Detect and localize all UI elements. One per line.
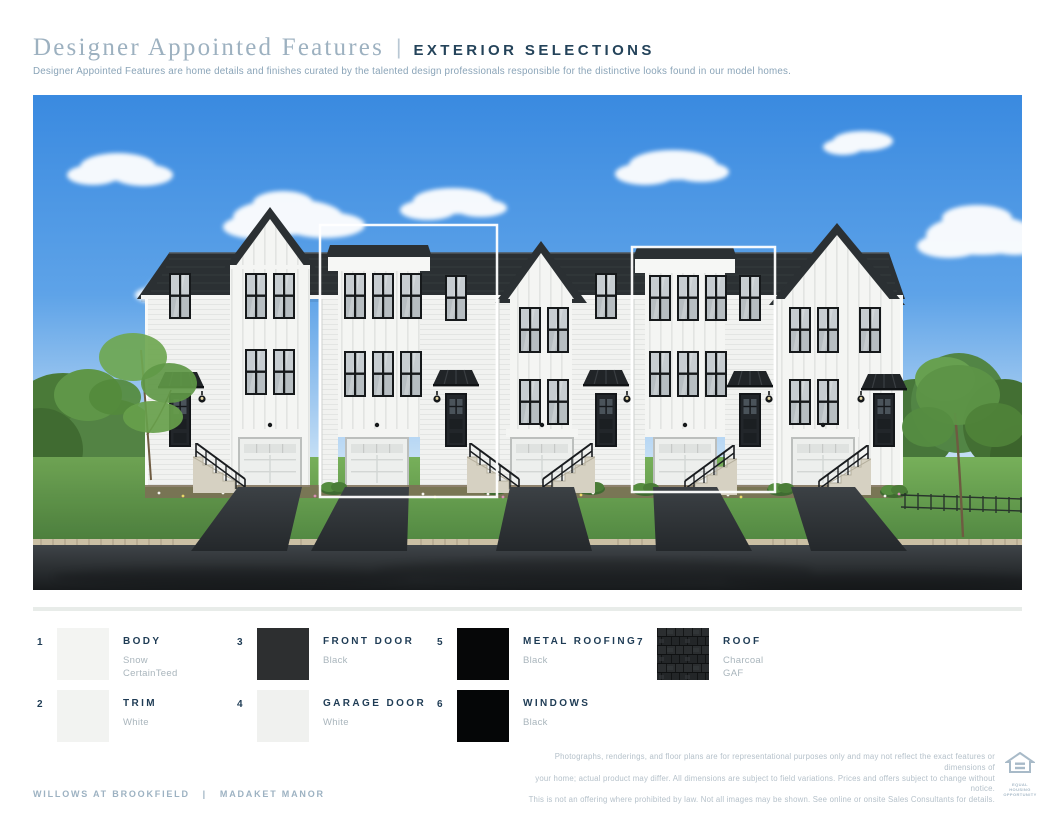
exterior-rendering-image xyxy=(33,95,1022,590)
legend-value: White xyxy=(123,717,149,728)
designer-features-sheet: Designer Appointed Features | EXTERIOR S… xyxy=(0,0,1055,815)
legend-label: FRONT DOOR xyxy=(323,636,414,647)
legend-label: WINDOWS xyxy=(523,698,590,709)
disclaimer-line-1: Photographs, renderings, and floor plans… xyxy=(520,752,995,774)
section-divider xyxy=(33,607,1022,611)
legend-value: Black xyxy=(523,655,548,666)
trim-swatch xyxy=(57,690,109,742)
body-swatch xyxy=(57,628,109,680)
legend-number: 7 xyxy=(637,628,657,648)
legend-item-metal-roofing: 5 METAL ROOFING Black xyxy=(437,628,637,680)
legend-item-body: 1 BODY Snow CertainTeed xyxy=(37,628,178,680)
community-line: WILLOWS AT BROOKFIELD | MADAKET MANOR xyxy=(33,787,415,802)
eho-text-line-1: EQUAL HOUSING xyxy=(1003,782,1037,792)
title-separator: | xyxy=(396,36,401,60)
garage-door-swatch xyxy=(257,690,309,742)
legend-label: GARAGE DOOR xyxy=(323,698,426,709)
legend-value: Black xyxy=(523,717,548,728)
legend-number: 2 xyxy=(37,690,57,710)
header-description: Designer Appointed Features are home det… xyxy=(33,66,791,77)
page-title: Designer Appointed Features xyxy=(33,34,384,62)
legend-item-roof: 7 xyxy=(637,628,763,680)
legend-value-2: CertainTeed xyxy=(123,668,178,679)
shingle-texture xyxy=(657,628,709,680)
legend-number: 4 xyxy=(237,690,257,710)
legend-value: Snow xyxy=(123,655,148,666)
legend-number: 1 xyxy=(37,628,57,648)
disclaimer-line-2: your home; actual product may differ. Al… xyxy=(520,774,995,796)
legend-number: 6 xyxy=(437,690,457,710)
legend-label: TRIM xyxy=(123,698,157,709)
legend-item-trim: 2 TRIM White xyxy=(37,690,157,742)
disclaimer-line-3: This is not an offering where prohibited… xyxy=(520,795,995,806)
legend-value-2: GAF xyxy=(723,668,743,679)
front-door-swatch xyxy=(257,628,309,680)
community-info: WILLOWS AT BROOKFIELD | MADAKET MANOR HO… xyxy=(33,757,415,815)
legend-number: 3 xyxy=(237,628,257,648)
legend-label: METAL ROOFING xyxy=(523,636,637,647)
roof-shingle-swatch xyxy=(657,628,709,680)
eho-text-line-2: OPPORTUNITY xyxy=(1003,792,1037,797)
page-header: Designer Appointed Features | EXTERIOR S… xyxy=(33,34,655,62)
legend-item-windows: 6 WINDOWS Black xyxy=(437,690,590,742)
legal-disclaimer: Photographs, renderings, and floor plans… xyxy=(520,752,995,806)
legend-item-garage-door: 4 GARAGE DOOR White xyxy=(237,690,426,742)
legend-value: White xyxy=(323,717,349,728)
legend-number: 5 xyxy=(437,628,457,648)
townhomes-rendering xyxy=(33,95,1022,590)
section-title: EXTERIOR SELECTIONS xyxy=(413,42,654,59)
equal-housing-logo: EQUAL HOUSING OPPORTUNITY xyxy=(1003,752,1037,797)
legend-value: Charcoal xyxy=(723,655,763,666)
legend-label: ROOF xyxy=(723,636,763,647)
legend-item-front-door: 3 FRONT DOOR Black xyxy=(237,628,414,680)
windows-swatch xyxy=(457,690,509,742)
metal-roofing-swatch xyxy=(457,628,509,680)
legend-label: BODY xyxy=(123,636,178,647)
equal-housing-house-icon xyxy=(1005,752,1035,776)
legend-value: Black xyxy=(323,655,348,666)
